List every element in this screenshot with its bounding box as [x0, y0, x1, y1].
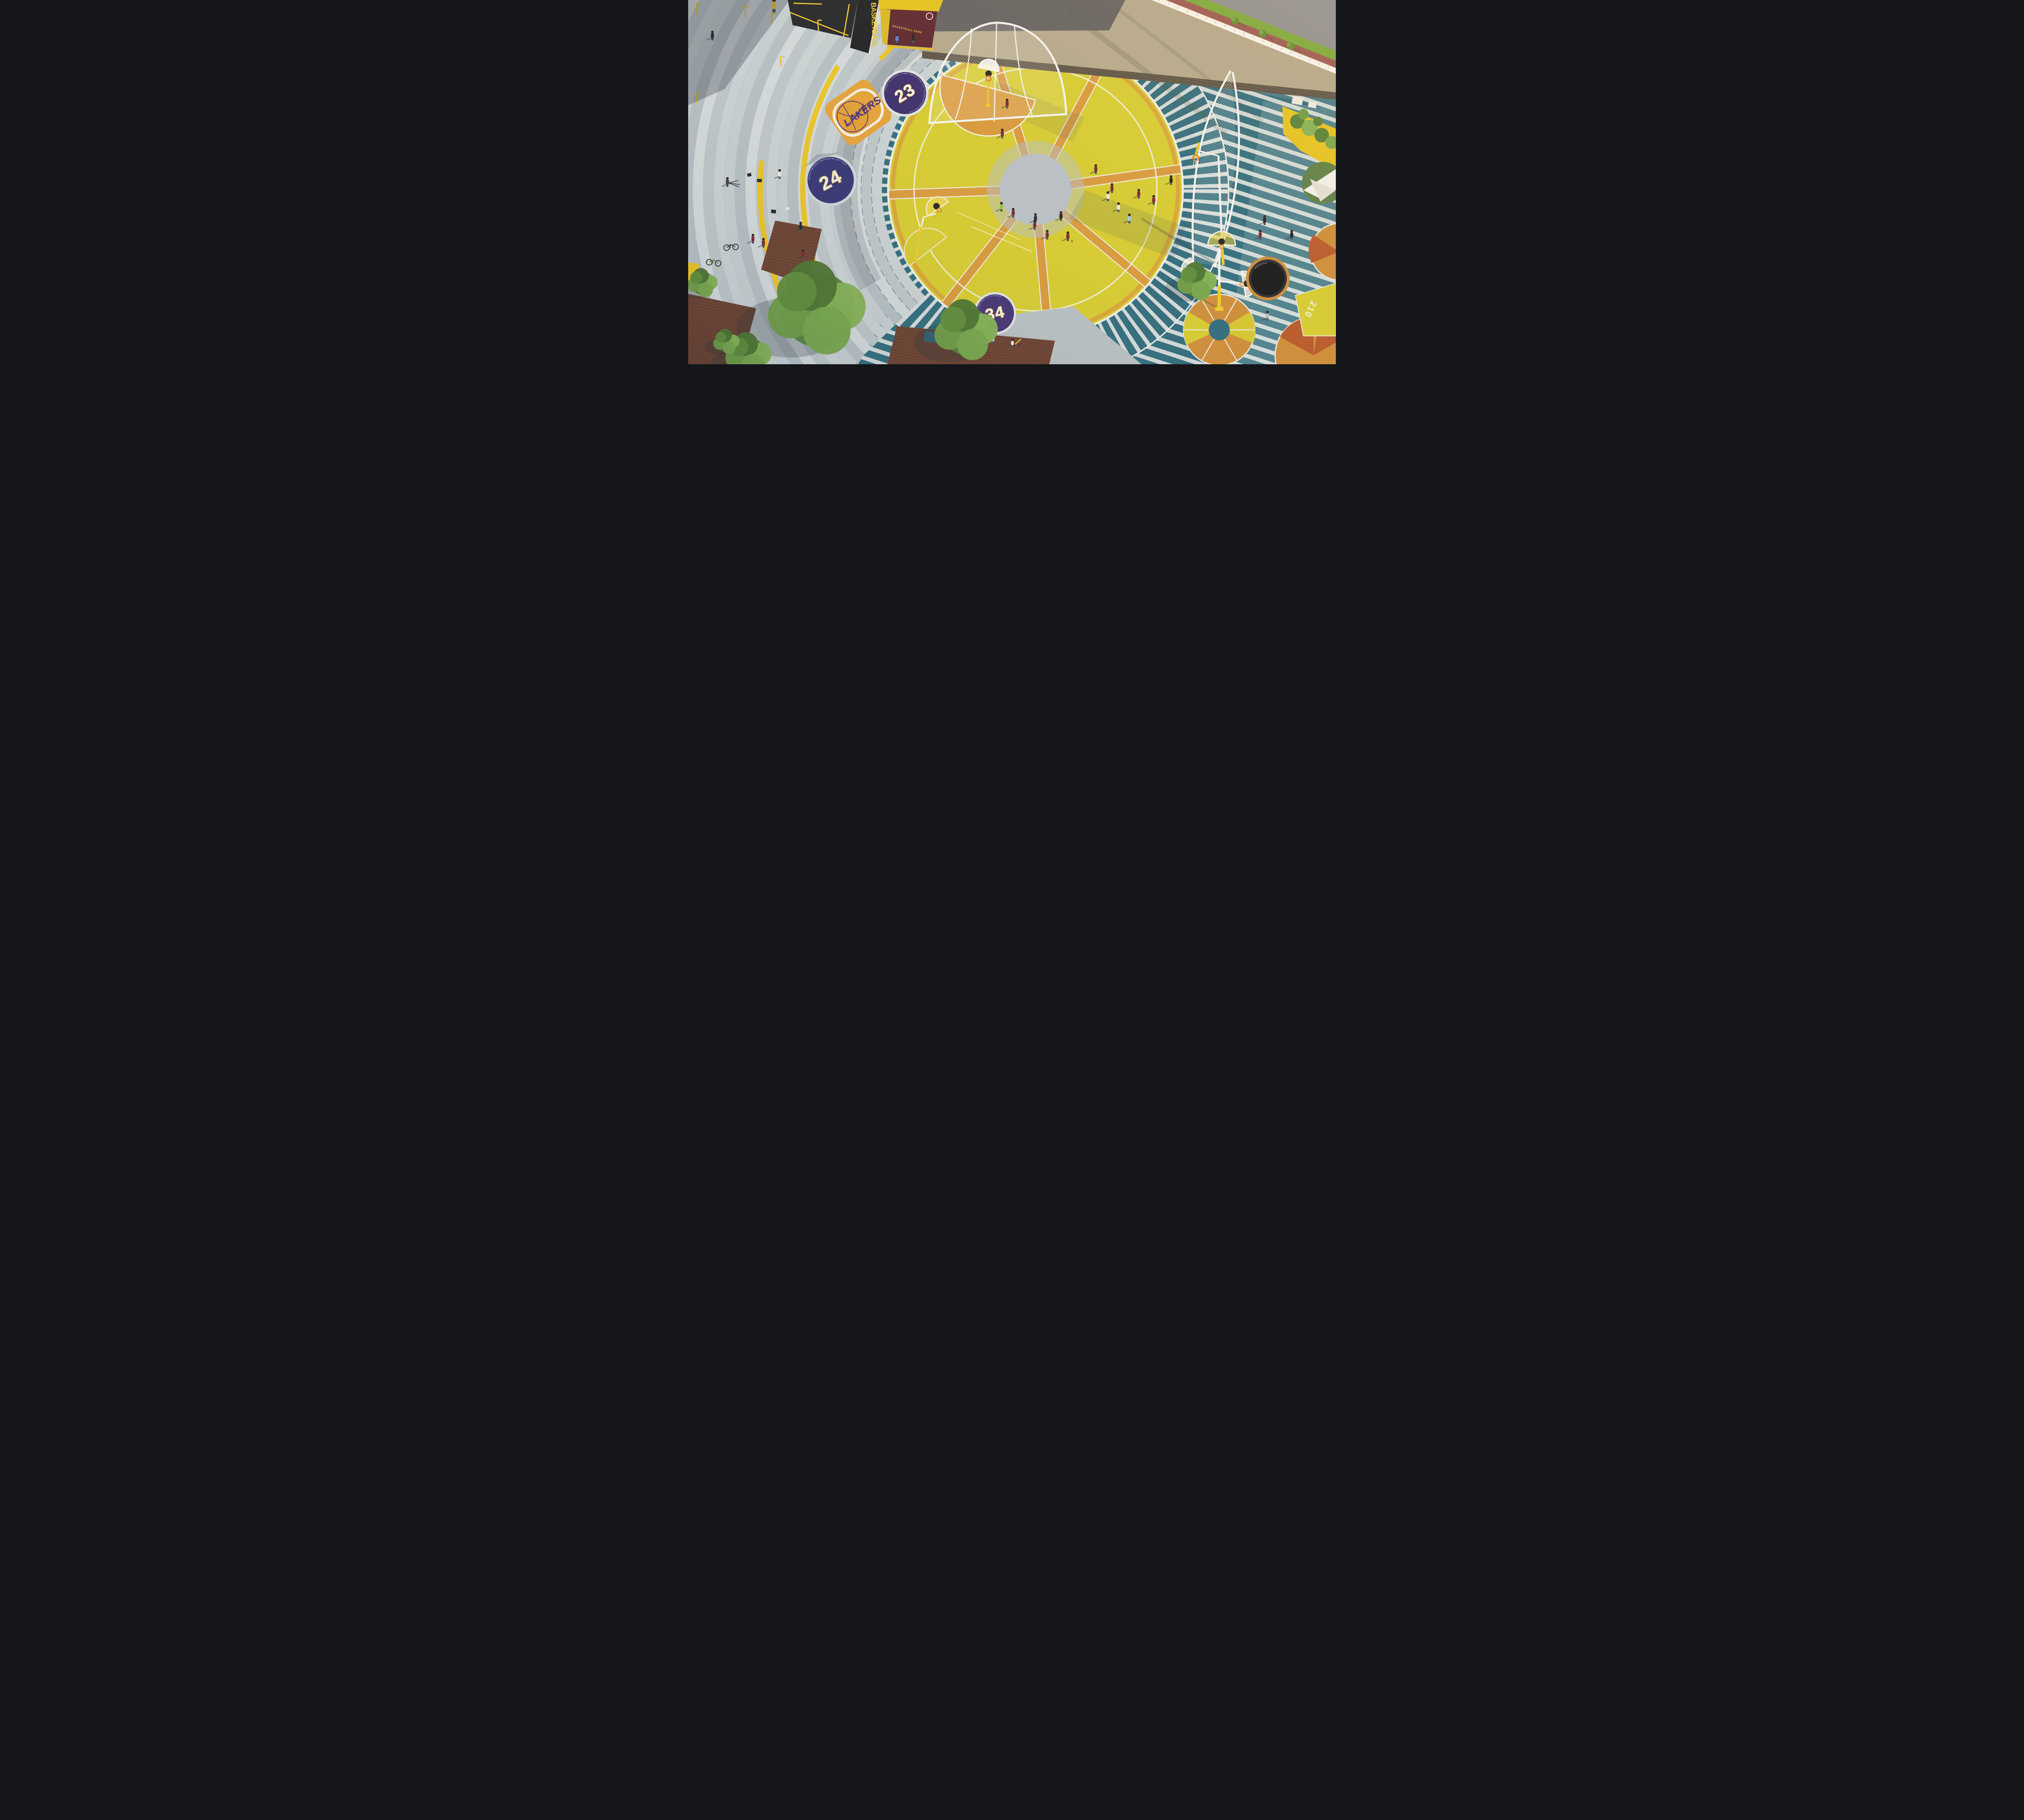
scene-svg: BASKETBALL BASKETBALL PARK LOS ANGELES L…: [688, 0, 1336, 364]
aerial-photo-stage: BASKETBALL BASKETBALL PARK LOS ANGELES L…: [688, 0, 1336, 364]
sunlight-overlay: [688, 0, 1336, 364]
